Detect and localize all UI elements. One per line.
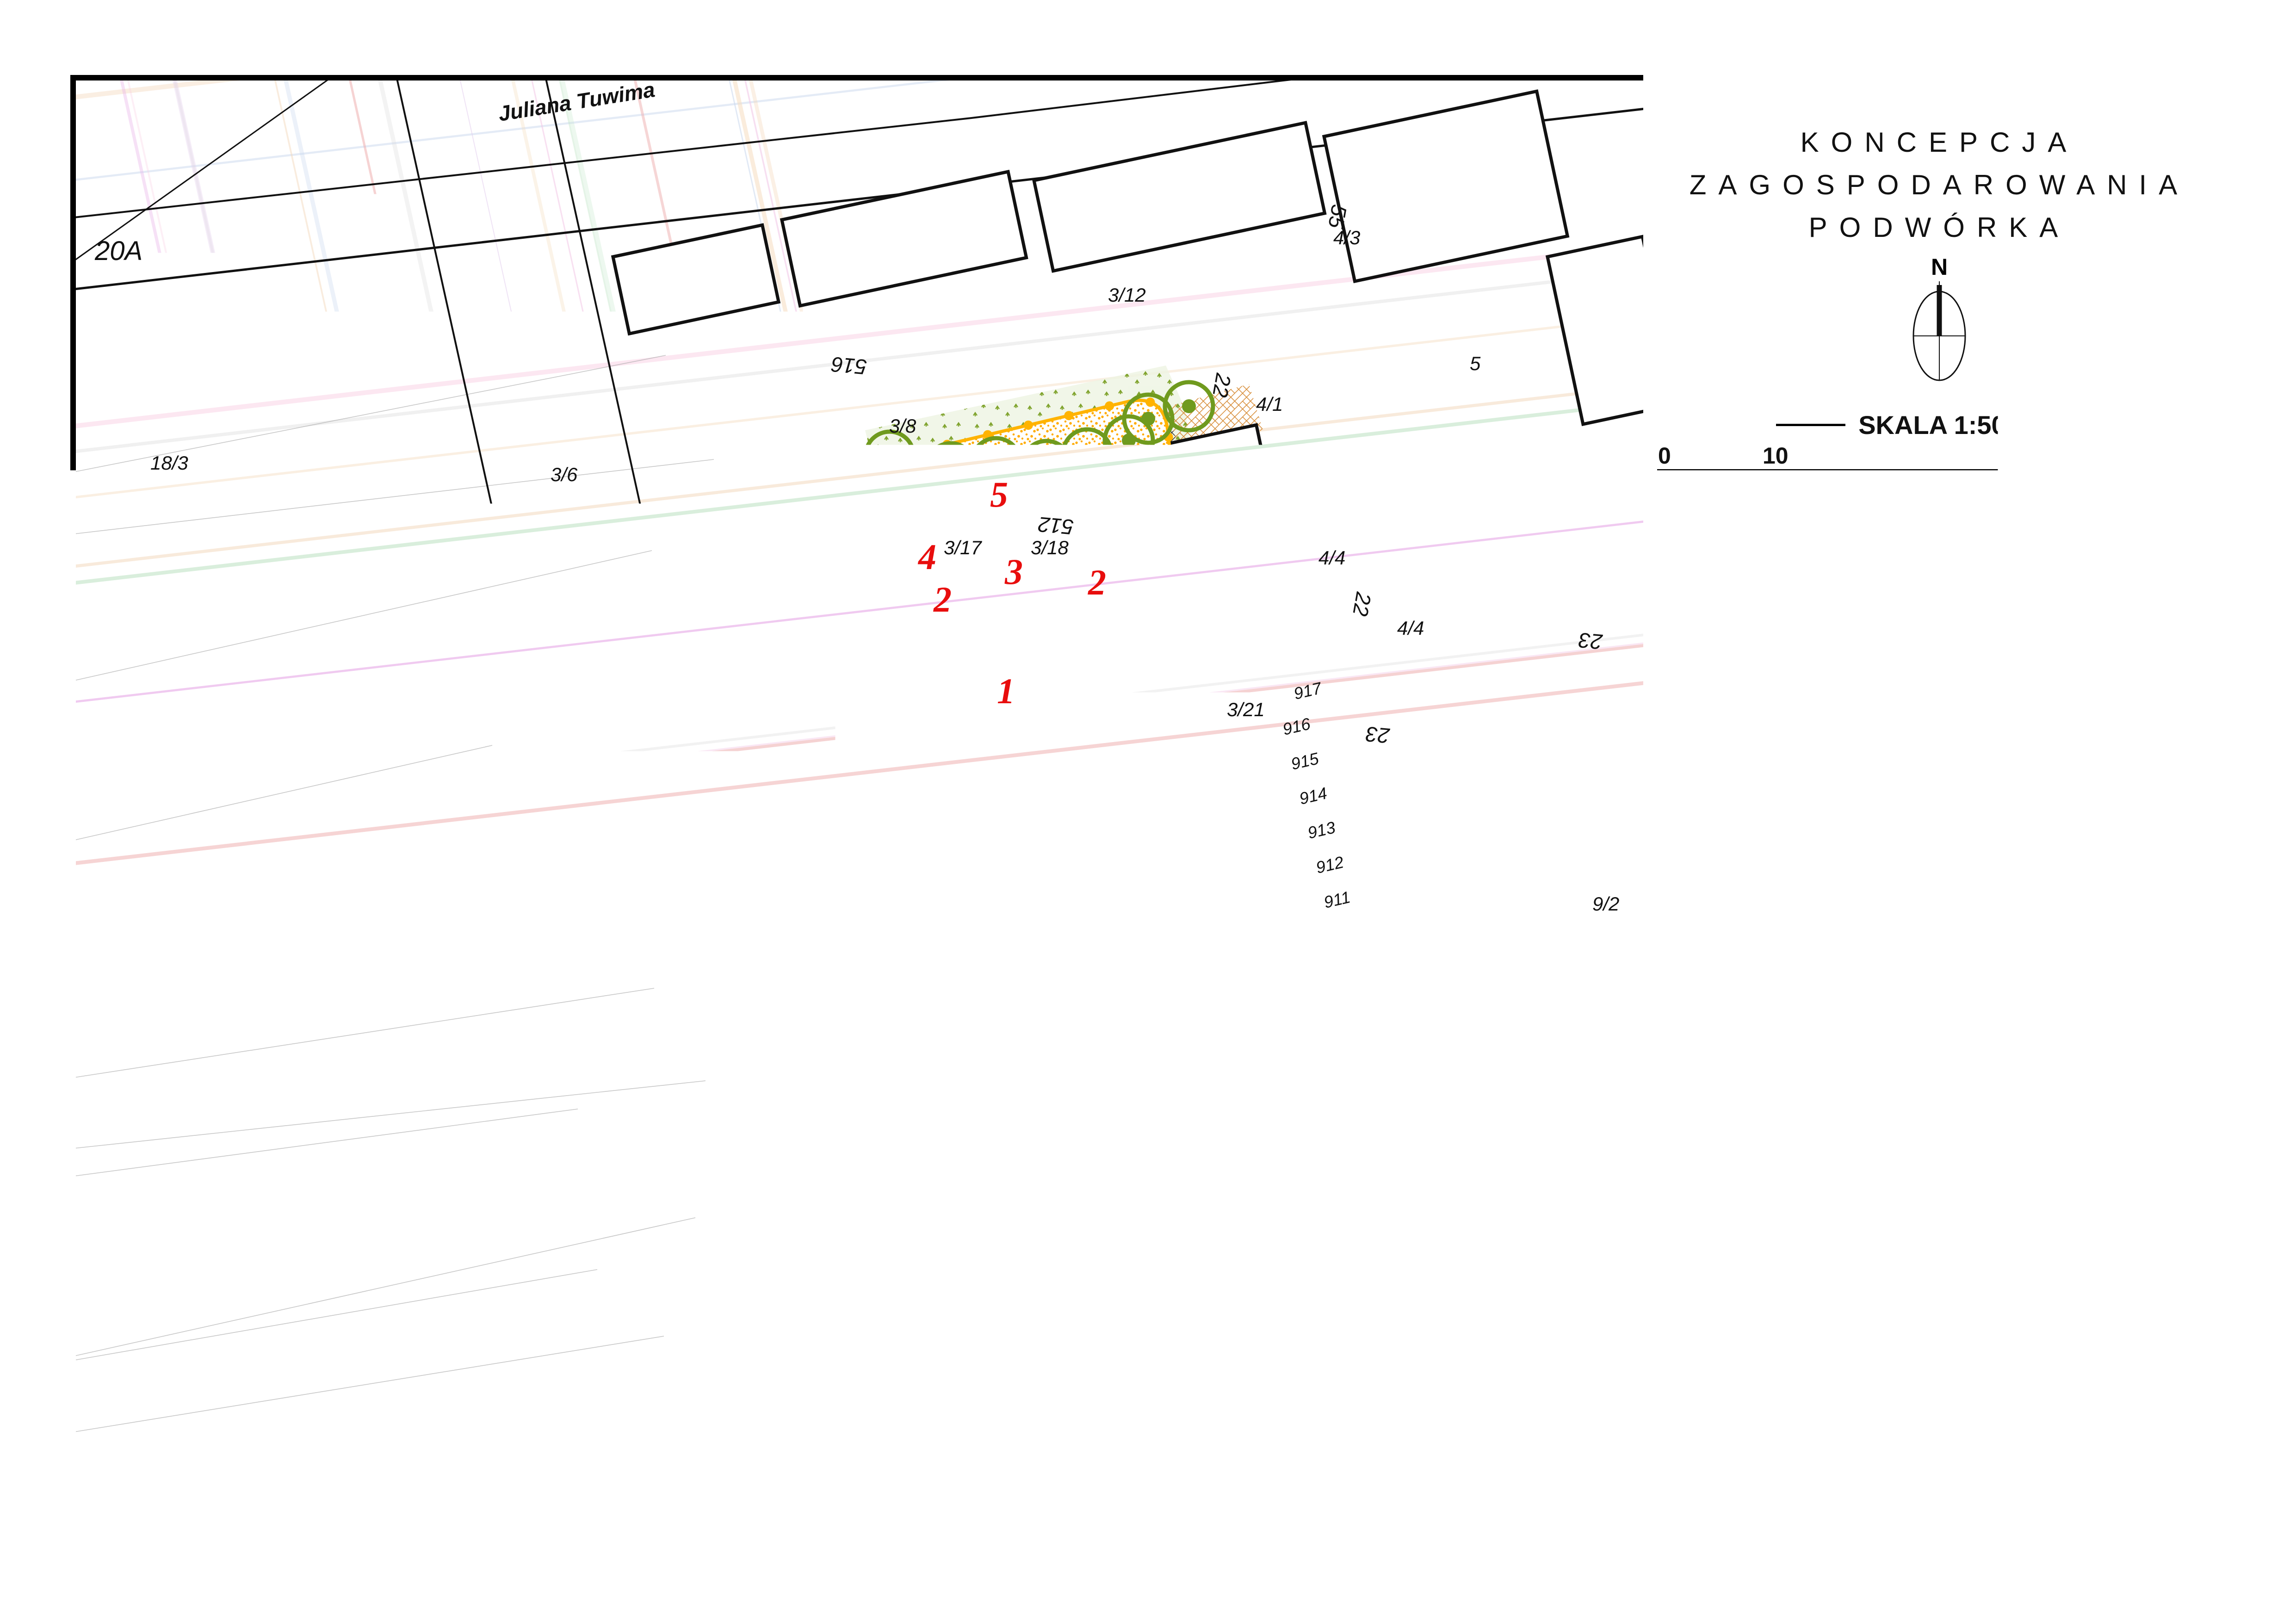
equipment-number-box: 1 — [1693, 1192, 1730, 1229]
map-label: 3/2 — [853, 545, 879, 567]
equipment-number-box: 3 — [1693, 1278, 1730, 1315]
plan-sheet: Juliana TuwimaWita Stwosza20A18/318/43/6… — [0, 0, 2296, 1623]
legend-item-label: ISTNIEJĄCA ZIELEŃ NISKA — [1764, 902, 1940, 917]
map-label: 22 — [1348, 590, 1376, 618]
trash-bin-icon — [1054, 491, 1066, 503]
map-label: 2 — [480, 626, 488, 640]
equipment-item-label: HUŚTAWKA — [1758, 1333, 1837, 1349]
legend-item-label: ALTANA — [1764, 693, 1815, 708]
equipment-item: 2 SPRĘŻYNOWCE — [1693, 1233, 2221, 1276]
equipment-number-label: 4 — [917, 537, 936, 577]
equipment-title: WYPOSAŻENIE PLACU ZABAW : — [1677, 1158, 2033, 1183]
scale-tick: 10 — [1763, 442, 1789, 469]
logo-line-2: MIASTA SŁUPSKA — [1649, 1578, 2230, 1608]
legend-panel: KONCEPCJA ZAGOSPODAROWANIA PODWÓRKA N SK… — [1649, 81, 2230, 1598]
equipment-item: 5 WAŻKA — [1693, 1362, 2221, 1405]
north-label: N — [1931, 254, 1948, 280]
legend-swatch — [1693, 886, 1739, 928]
legend-item: PIASKOWNICA — [1693, 727, 2221, 779]
legend-item-label: KOSZ NA ŚMIECI — [1764, 1059, 1875, 1074]
map-label: 3/4 — [732, 878, 759, 899]
map-label: 3/18 — [1031, 537, 1069, 558]
scale-tick: 5 — [1709, 504, 1722, 531]
logo-biuro: BIURO — [1649, 1428, 2230, 1523]
logo-tricolor-bar — [1662, 1533, 2217, 1544]
equipment-number-box: 2 — [1693, 1235, 1730, 1272]
legend-swatch — [1693, 677, 1739, 719]
equipment-list: 1 ZESTAW ZABAWOWY 2 SPRĘŻYNOWCE 3 TRÓJKĄ… — [1693, 1190, 2221, 1405]
map-label: 3/8 — [889, 415, 916, 437]
legend-swatch — [1693, 625, 1739, 667]
logo-line-1: URBANISTYCZNE — [1649, 1550, 2230, 1580]
legend-item: OGRODZONY PLAC ZABAW — [1693, 570, 2221, 622]
map-label: 3/10 — [786, 1115, 823, 1137]
legend-item-label: ISTNIEJĄCE DOJŚCIA / DOJAZDY — [1764, 798, 1982, 813]
scale-tick: 20 — [1925, 504, 1950, 531]
drawing-title: KONCEPCJA ZAGOSPODAROWANIA PODWÓRKA — [1649, 121, 2230, 249]
map-label: 512 — [1037, 512, 1075, 539]
scale-caption: SKALA 1:500 — [1649, 410, 2230, 440]
equipment-item-label: TRÓJKĄT SPRAWNOŚCIOWY — [1758, 1290, 1957, 1306]
map-label: 19/3 — [499, 1131, 537, 1152]
equipment-item-label: ZESTAW ZABAWOWY — [1758, 1204, 1904, 1220]
legend-swatch — [1693, 573, 1739, 614]
legend-item-label: OGRODZONY PLAC ZABAW — [1764, 588, 1946, 604]
legend-item-label: ZIELEŃ WYSOKA — [1764, 954, 1876, 970]
legend-swatch — [1693, 730, 1739, 771]
map-label: 3/12 — [1108, 284, 1146, 306]
map-label: 13/1 — [1290, 1510, 1328, 1532]
map-label: 695 — [306, 1274, 339, 1296]
map-label: 23 — [1365, 722, 1391, 748]
map-label: 20A — [94, 236, 142, 266]
trash-bin-icon — [990, 1081, 1002, 1093]
map-label: 22 — [1208, 371, 1236, 399]
map-label: 9/2 — [1592, 893, 1619, 915]
equipment-item: 3 TRÓJKĄT SPRAWNOŚCIOWY — [1693, 1276, 2221, 1319]
site-plan-map: Juliana TuwimaWita Stwosza20A18/318/43/6… — [76, 81, 1643, 1545]
equipment-number-label: 2 — [933, 579, 952, 619]
legend-item: ISTNIEJĄCA ZIELEŃ NISKA — [1693, 884, 2221, 936]
map-label: 5 — [1470, 353, 1481, 374]
map-label: 18/3 — [150, 452, 188, 474]
equipment-number-box: 5 — [1693, 1364, 1730, 1401]
scale-bar: 0 10 50 5 20 — [1657, 442, 2212, 535]
trash-bin-icon — [910, 756, 922, 768]
legend-item-label: ŁAWECZKA — [1764, 1007, 1838, 1022]
legend-item: ZIELEŃ WYSOKA — [1693, 936, 2221, 988]
map-label: 20/1 — [667, 1478, 705, 1499]
legend-item-label: PLANOWANE DOJŚCIA / DOJAZDY — [1764, 850, 1990, 865]
map-label: 3/22 — [712, 478, 750, 500]
equipment-number-label: 2 — [1088, 562, 1106, 602]
equipment-item: 1 ZESTAW ZABAWOWY — [1693, 1190, 2221, 1233]
map-label: 20/2 — [221, 1465, 259, 1487]
equipment-number-label: 3 — [1004, 551, 1023, 592]
map-label: 55 — [1324, 203, 1351, 230]
equipment-item-label: SPRĘŻYNOWCE — [1758, 1247, 1869, 1263]
legend-item: STOJAK ROWEROWY — [1693, 1093, 2221, 1145]
scale-tick: 50 — [2190, 442, 2216, 469]
map-label: 23 — [1409, 941, 1435, 967]
legend-swatch — [1693, 834, 1739, 876]
map-label: 3/20 — [818, 1338, 856, 1360]
map-label: 3/21 — [1227, 699, 1265, 720]
legend-swatch — [1693, 1096, 1739, 1137]
legend-item-label: SYNTETYCZNA PŁYTA BOISKA I OGRODZENIE — [1764, 641, 2068, 656]
map-label: 516 — [830, 352, 867, 379]
equipment-number-label: 5 — [990, 474, 1008, 514]
legend-swatch — [1693, 991, 1739, 1033]
map-label: 3/17 — [944, 537, 982, 558]
north-arrow: N — [1900, 253, 1979, 394]
legend-list: OGRODZONY PLAC ZABAW SYNTETYCZNA PŁYTA B… — [1693, 570, 2221, 1145]
legend-item: SYNTETYCZNA PŁYTA BOISKA I OGRODZENIE — [1693, 622, 2221, 675]
map-label: 4/4 — [1318, 547, 1345, 569]
equipment-item: 4 HUŚTAWKA — [1693, 1319, 2221, 1362]
equipment-number-label: 1 — [997, 671, 1015, 711]
legend-item: KOSZ NA ŚMIECI — [1693, 1041, 2221, 1093]
legend-item-label: PIASKOWNICA — [1764, 745, 1861, 761]
legend-swatch — [1693, 1043, 1739, 1085]
legend-swatch — [1693, 939, 1739, 980]
equipment-number-box: 4 — [1693, 1321, 1730, 1358]
scale-tick: 0 — [1658, 442, 1671, 469]
equipment-item-label: WAŻKA — [1758, 1376, 1808, 1392]
legend-title: OZNACZENIA : — [1693, 544, 1911, 565]
map-label: 18/4 — [135, 603, 173, 625]
legend-item-label: STOJAK ROWEROWY — [1764, 1111, 1906, 1127]
legend-item: ALTANA — [1693, 675, 2221, 727]
map-label: 23 — [1578, 628, 1604, 654]
legend-item: ISTNIEJĄCE DOJŚCIA / DOJAZDY — [1693, 779, 2221, 831]
legend-swatch — [1693, 782, 1739, 824]
map-label: 4/4 — [1397, 617, 1424, 639]
map-label: 4/1 — [1256, 393, 1283, 415]
map-area: Juliana TuwimaWita Stwosza20A18/318/43/6… — [76, 81, 1643, 1545]
legend-item: PLANOWANE DOJŚCIA / DOJAZDY — [1693, 831, 2221, 884]
map-label: 3/6 — [551, 464, 578, 485]
legend-item: ŁAWECZKA — [1693, 988, 2221, 1041]
